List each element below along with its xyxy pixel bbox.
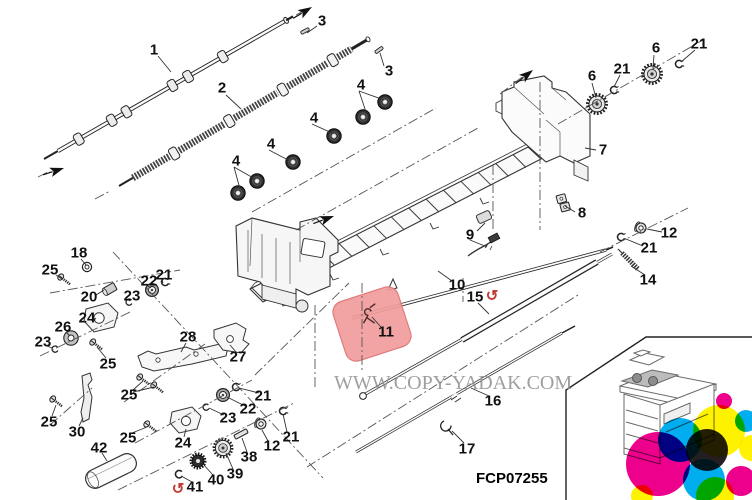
- part-label: 39: [227, 467, 244, 482]
- part-label: 21: [255, 389, 272, 404]
- part-label: 11: [378, 325, 394, 340]
- cmyk-circle: [735, 410, 752, 432]
- part-label: 27: [230, 350, 247, 365]
- part-label: 23: [35, 335, 52, 350]
- part-label: 4: [357, 78, 365, 93]
- part-label: 7: [599, 143, 607, 158]
- part-label: 10: [449, 278, 466, 293]
- shaft-1: [41, 11, 296, 164]
- part-label: 3: [385, 64, 393, 79]
- part-label: 28: [180, 330, 197, 345]
- part-label: 8: [578, 206, 586, 221]
- part-label: 24: [79, 311, 96, 326]
- left-frame-bracket: [236, 218, 338, 312]
- part-label: 22: [240, 402, 257, 417]
- pins-3: [300, 27, 383, 53]
- part-label: 4: [267, 137, 275, 152]
- part-label: 18: [71, 246, 88, 261]
- part-label: 4: [310, 111, 318, 126]
- part-label: 25: [121, 388, 138, 403]
- part-label: 12: [661, 226, 678, 241]
- part-label: 25: [120, 431, 137, 446]
- part-label: 17: [459, 442, 476, 457]
- part-label: 3: [318, 14, 326, 29]
- cmyk-circle: [631, 485, 653, 500]
- part-label: 6: [652, 41, 660, 56]
- part-label: 26: [55, 320, 72, 335]
- part-label: 21: [614, 62, 631, 77]
- part-label: 9: [466, 228, 474, 243]
- watermark-text: WWW.COPY-YADAK.COM: [334, 372, 548, 395]
- part-label: 16: [485, 394, 502, 409]
- part-label: 22: [141, 274, 158, 289]
- part-label: 23: [124, 289, 141, 304]
- rotate-arrow-icon: ↺: [172, 482, 185, 497]
- part-label: 20: [81, 290, 98, 305]
- part-label: 40: [208, 473, 225, 488]
- part-label: 14: [640, 273, 657, 288]
- hook-17: [441, 421, 453, 435]
- part-label: 25: [100, 357, 117, 372]
- part-label: 25: [42, 263, 59, 278]
- gears-6-and-clips-21: [588, 60, 685, 113]
- part-label: 21: [283, 430, 300, 445]
- part-label: 6: [588, 69, 596, 84]
- cmyk-circle: [726, 466, 752, 496]
- part-label: 21: [691, 37, 708, 52]
- part-label: 41: [187, 480, 204, 495]
- part-label: 38: [241, 450, 258, 465]
- part-label: 21: [641, 241, 658, 256]
- rotate-arrow-icon: ↺: [486, 289, 499, 304]
- part-label: 4: [232, 154, 240, 169]
- part-label: 23: [220, 411, 237, 426]
- part-label: 12: [264, 439, 281, 454]
- part-label: 25: [41, 415, 58, 430]
- sensor-8: [556, 193, 571, 212]
- highlight-region-11: [330, 284, 414, 364]
- part-label: 1: [150, 43, 158, 58]
- figure-code-label: FCP07255: [476, 470, 548, 487]
- part-label: 30: [69, 425, 86, 440]
- part-label: 24: [175, 436, 192, 451]
- cmyk-circle: [739, 435, 752, 461]
- part-label: 42: [91, 441, 108, 456]
- part-label: 2: [218, 81, 226, 96]
- parts-diagram-page: 1 2 3 3 4 4 4 4 6 21 6 21 7 8 9 12 21 14…: [0, 0, 752, 500]
- brand-logo: [560, 330, 752, 500]
- part-label: 15: [467, 290, 484, 305]
- part-label: 21: [156, 268, 173, 283]
